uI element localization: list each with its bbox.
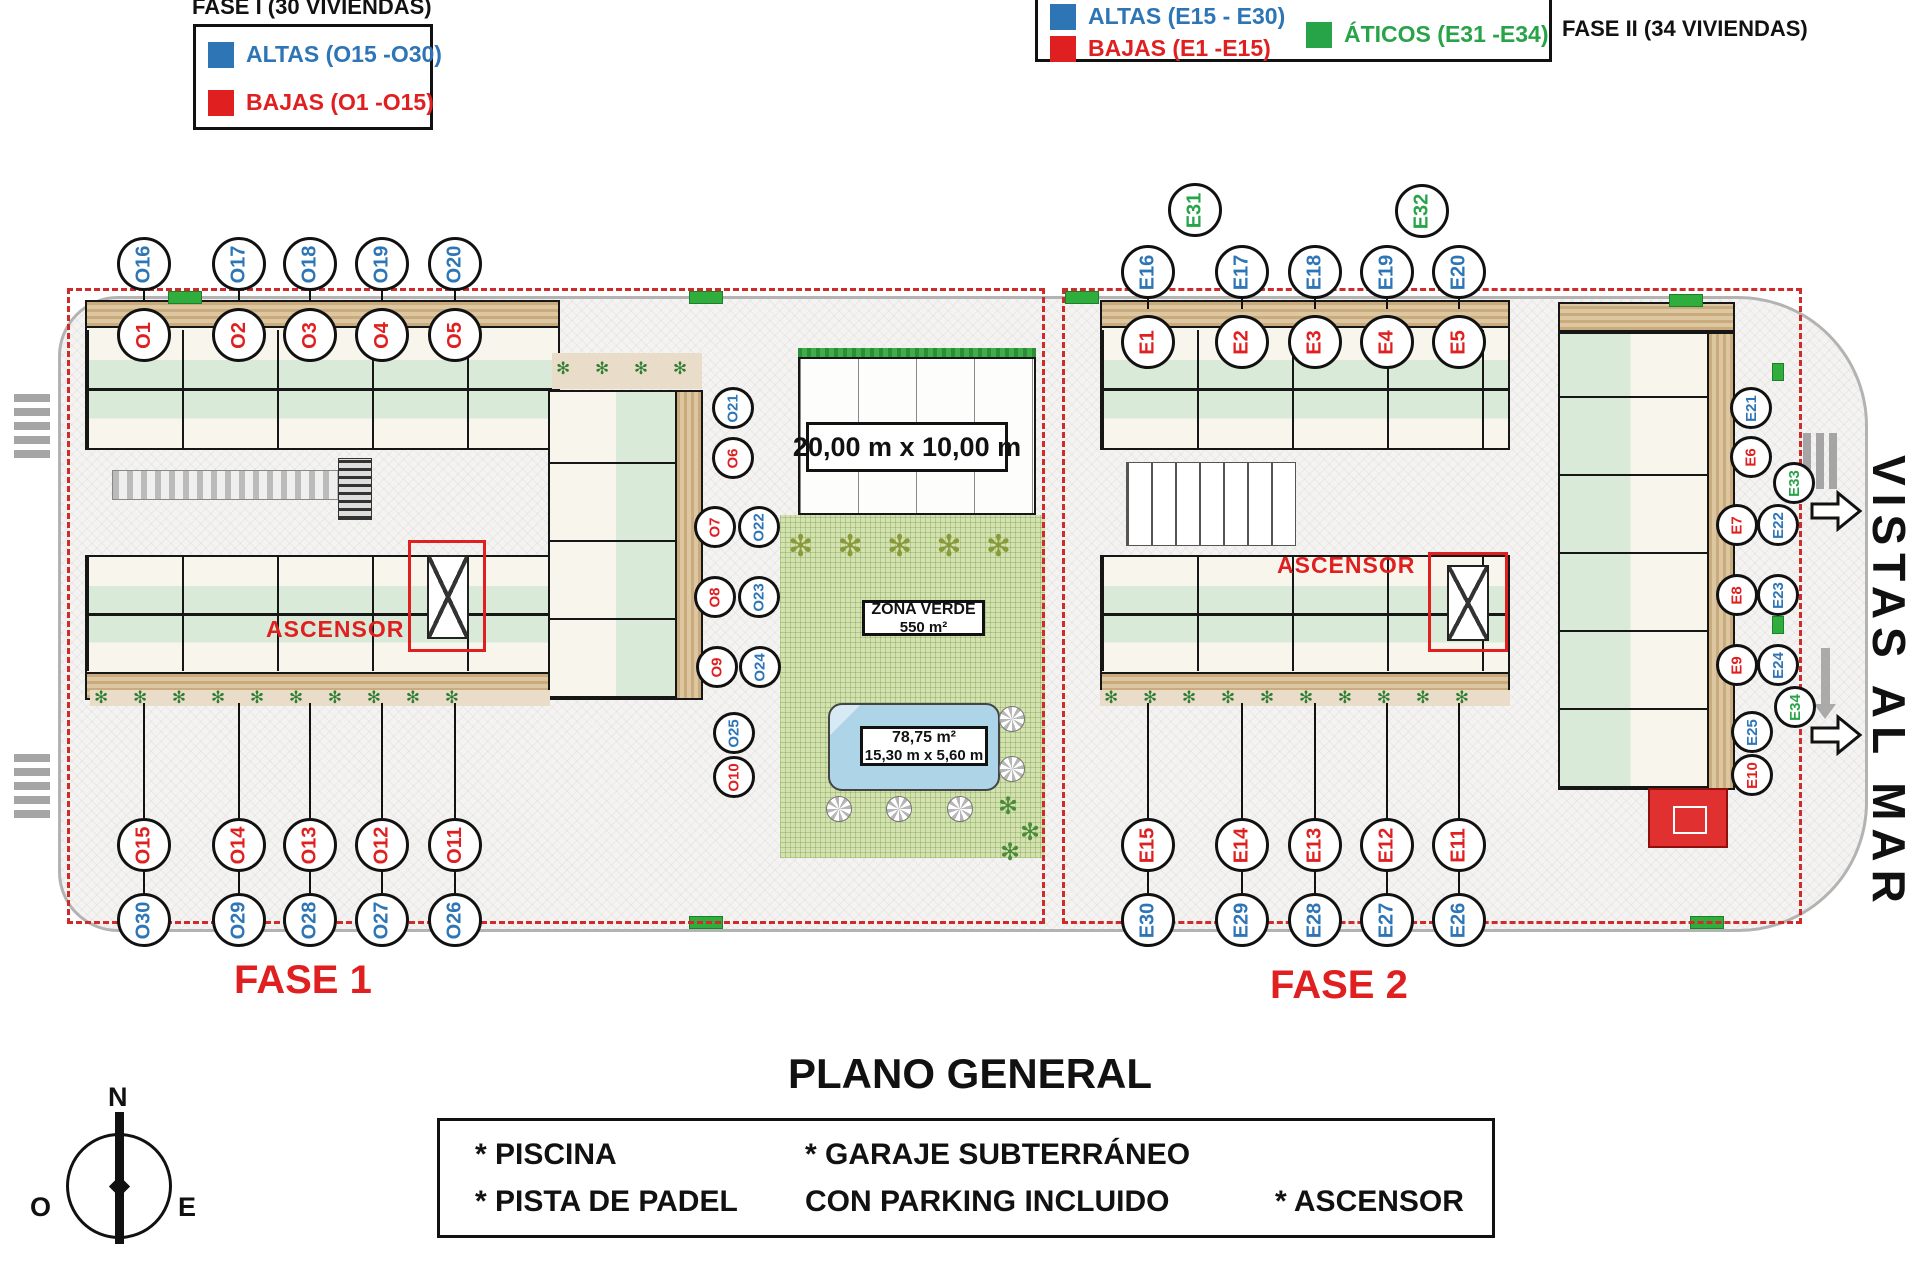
utility-room	[1648, 788, 1728, 848]
unit-circle-O3[interactable]: O3	[283, 308, 337, 362]
vent	[1065, 291, 1099, 304]
vistas-al-mar-label: VISTAS AL MAR	[1862, 455, 1916, 911]
tree-strip	[90, 690, 550, 706]
zona-verde-box: ZONA VERDE 550 m²	[862, 600, 985, 636]
compass-east-label: E	[178, 1192, 196, 1223]
unit-stem	[381, 291, 383, 301]
unit-stem	[1458, 871, 1460, 893]
zona-verde-label: ZONA VERDE	[871, 601, 975, 619]
unit-circle-label: O5	[444, 322, 467, 349]
unit-circle-E9[interactable]: E9	[1716, 644, 1758, 686]
unit-circle-label: O17	[228, 245, 251, 283]
unit-circle-O27[interactable]: O27	[355, 893, 409, 947]
unit-circle-label: E28	[1304, 902, 1327, 938]
unit-circle-label: E7	[1728, 516, 1745, 534]
parasol-icon	[886, 796, 912, 822]
unit-stem	[381, 703, 383, 818]
vent	[1772, 616, 1784, 634]
unit-circle-E10[interactable]: E10	[1731, 754, 1773, 796]
garage-ramp	[112, 470, 342, 500]
unit-circle-O26[interactable]: O26	[428, 893, 482, 947]
unit-circle-label: O22	[750, 513, 767, 541]
unit-circle-label: O29	[228, 901, 251, 939]
unit-circle-E19[interactable]: E19	[1360, 245, 1414, 299]
unit-column	[1560, 334, 1707, 788]
fase1-east-block	[548, 390, 703, 700]
garden-strip	[552, 353, 702, 389]
unit-circle-E24[interactable]: E24	[1757, 644, 1799, 686]
unit-circle-E18[interactable]: E18	[1288, 245, 1342, 299]
unit-circle-label: E24	[1769, 652, 1786, 679]
sea-arrow-icon	[1810, 490, 1864, 532]
unit-circle-label: E30	[1137, 902, 1160, 938]
unit-circle-E15[interactable]: E15	[1121, 818, 1175, 872]
unit-circle-label: O8	[706, 587, 723, 607]
unit-stem	[238, 703, 240, 818]
unit-circle-O24[interactable]: O24	[739, 646, 781, 688]
unit-circle-label: E20	[1448, 254, 1471, 290]
stairs-icon	[14, 748, 50, 818]
unit-circle-O9[interactable]: O9	[696, 646, 738, 688]
unit-circle-O10[interactable]: O10	[713, 756, 755, 798]
unit-circle-label: E9	[1728, 656, 1745, 674]
unit-circle-label: E13	[1304, 827, 1327, 863]
page-title: PLANO GENERAL	[788, 1050, 1152, 1098]
unit-circle-O20[interactable]: O20	[428, 237, 482, 291]
unit-stem	[1386, 703, 1388, 818]
legend-fase1-title: FASE I (30 VIVIENDAS)	[192, 0, 432, 20]
down-arrow-icon	[1821, 648, 1830, 706]
palm-tree: ✻	[1000, 838, 1020, 867]
elevator-icon	[1447, 565, 1489, 641]
unit-circle-label: E4	[1376, 330, 1399, 354]
unit-circle-E13[interactable]: E13	[1288, 818, 1342, 872]
unit-circle-label: O27	[371, 901, 394, 939]
unit-circle-label: O30	[133, 901, 156, 939]
unit-circle-O22[interactable]: O22	[738, 506, 780, 548]
fase1-ascensor-label: ASCENSOR	[266, 616, 404, 643]
unit-circle-E12[interactable]: E12	[1360, 818, 1414, 872]
unit-circle-O21[interactable]: O21	[712, 387, 754, 429]
unit-circle-label: O7	[706, 517, 723, 537]
amenities-box: * PISCINA * GARAJE SUBTERRÁNEO * PISTA D…	[437, 1118, 1495, 1238]
padel-dims-box: 20,00 m x 10,00 m	[806, 422, 1008, 472]
wood-deck	[1707, 334, 1733, 788]
fase2-ascensor-label: ASCENSOR	[1277, 552, 1415, 579]
unit-circle-label: O15	[133, 826, 156, 864]
compass-west-label: O	[30, 1192, 51, 1223]
unit-circle-label: E8	[1728, 586, 1745, 604]
fase2-east-block	[1558, 332, 1735, 790]
amenity-parking: CON PARKING INCLUIDO	[805, 1185, 1275, 1219]
unit-stem	[238, 291, 240, 301]
unit-circle-label: O13	[299, 826, 322, 864]
unit-circle-E2[interactable]: E2	[1215, 315, 1269, 369]
unit-circle-E32[interactable]: E32	[1395, 184, 1449, 238]
unit-circle-label: E10	[1743, 762, 1760, 789]
legend-fase2-bajas: BAJAS (E1 -E15)	[1050, 35, 1271, 62]
unit-circle-label: O4	[371, 322, 394, 349]
unit-circle-O2[interactable]: O2	[212, 308, 266, 362]
hedge-strip	[798, 348, 1036, 357]
unit-stem	[1458, 299, 1460, 309]
amenity-garaje: * GARAJE SUBTERRÁNEO	[805, 1138, 1275, 1172]
vent	[168, 291, 202, 304]
parasol-icon	[999, 706, 1025, 732]
unit-circle-label: E33	[1785, 470, 1802, 497]
unit-stem	[1241, 703, 1243, 818]
site-plan: FASE I (30 VIVIENDAS) ALTAS (O15 -O30) B…	[0, 0, 1920, 1280]
unit-circle-E20[interactable]: E20	[1432, 245, 1486, 299]
unit-stem	[1241, 871, 1243, 893]
unit-circle-label: E6	[1742, 448, 1759, 466]
unit-stem	[143, 703, 145, 818]
unit-circle-label: E2	[1231, 330, 1254, 354]
unit-stem	[1314, 703, 1316, 818]
bajas-swatch	[1050, 36, 1076, 62]
aticos-swatch	[1306, 22, 1332, 48]
pool-dims-box: 78,75 m² 15,30 m x 5,60 m	[860, 726, 988, 766]
unit-circle-label: E27	[1376, 902, 1399, 938]
unit-circle-O15[interactable]: O15	[117, 818, 171, 872]
unit-circle-label: O21	[724, 394, 741, 422]
unit-circle-label: E1	[1137, 330, 1160, 354]
unit-circle-O23[interactable]: O23	[738, 576, 780, 618]
vent	[1669, 294, 1703, 307]
unit-circle-E30[interactable]: E30	[1121, 893, 1175, 947]
unit-circle-label: E23	[1769, 582, 1786, 609]
unit-circle-E17[interactable]: E17	[1215, 245, 1269, 299]
unit-circle-label: O2	[228, 322, 251, 349]
sea-arrow-icon	[1810, 714, 1864, 756]
wood-deck	[1558, 302, 1735, 332]
unit-circle-label: O11	[443, 827, 466, 864]
unit-stem	[1386, 871, 1388, 893]
legend-fase2-title: FASE II (34 VIVIENDAS)	[1562, 16, 1808, 42]
unit-circle-label: O6	[724, 448, 741, 468]
legend-fase2-aticos: ÁTICOS (E31 -E34)	[1306, 21, 1549, 48]
unit-stem	[381, 871, 383, 893]
unit-circle-E7[interactable]: E7	[1716, 504, 1758, 546]
unit-circle-label: O16	[133, 245, 156, 283]
amenity-padel: * PISTA DE PADEL	[475, 1185, 805, 1219]
unit-circle-O25[interactable]: O25	[713, 712, 755, 754]
unit-stem	[143, 291, 145, 301]
palm-tree: ✻	[1020, 818, 1040, 847]
altas-swatch	[208, 42, 234, 68]
unit-circle-label: E11	[1447, 828, 1470, 862]
tree-strip	[1100, 690, 1510, 706]
unit-stem	[309, 871, 311, 893]
unit-circle-O5[interactable]: O5	[428, 308, 482, 362]
unit-circle-label: E18	[1304, 254, 1327, 290]
unit-circle-E27[interactable]: E27	[1360, 893, 1414, 947]
vent	[689, 291, 723, 304]
unit-circle-E6[interactable]: E6	[1730, 436, 1772, 478]
unit-circle-label: O14	[228, 826, 251, 864]
unit-circle-O4[interactable]: O4	[355, 308, 409, 362]
legend-fase2-box: ALTAS (E15 - E30) BAJAS (E1 -E15) ÁTICOS…	[1035, 0, 1552, 62]
unit-stem	[1147, 299, 1149, 309]
amenity-piscina: * PISCINA	[475, 1138, 805, 1172]
unit-circle-O11[interactable]: O11	[428, 818, 482, 872]
unit-circle-E28[interactable]: E28	[1288, 893, 1342, 947]
unit-circle-E31[interactable]: E31	[1168, 183, 1222, 237]
unit-circle-label: E17	[1231, 254, 1254, 290]
stairs-block	[338, 458, 372, 520]
unit-circle-label: O23	[750, 583, 767, 611]
unit-circle-label: E31	[1184, 192, 1207, 228]
unit-circle-E8[interactable]: E8	[1716, 574, 1758, 616]
unit-circle-E26[interactable]: E26	[1432, 893, 1486, 947]
unit-circle-O16[interactable]: O16	[117, 237, 171, 291]
unit-circle-label: E16	[1137, 254, 1160, 290]
unit-column	[550, 392, 677, 698]
unit-stem	[454, 291, 456, 301]
amenity-ascensor: * ASCENSOR	[1275, 1185, 1515, 1219]
unit-stem	[238, 871, 240, 893]
unit-stem	[1241, 299, 1243, 309]
unit-row	[1102, 388, 1508, 448]
unit-circle-O8[interactable]: O8	[694, 576, 736, 618]
palm-tree-row	[788, 530, 1038, 566]
unit-circle-E33[interactable]: E33	[1773, 462, 1815, 504]
unit-circle-label: E14	[1231, 827, 1254, 863]
unit-circle-label: O24	[751, 653, 768, 681]
unit-circle-label: O20	[444, 245, 467, 283]
unit-stem	[454, 871, 456, 893]
unit-circle-label: O18	[299, 245, 322, 283]
fase2-elevator-box	[1428, 552, 1508, 652]
unit-stem	[143, 871, 145, 893]
unit-circle-label: O10	[725, 763, 742, 791]
wood-deck	[675, 392, 701, 698]
unit-circle-O17[interactable]: O17	[212, 237, 266, 291]
unit-circle-label: E5	[1448, 330, 1471, 354]
unit-circle-E25[interactable]: E25	[1731, 711, 1773, 753]
unit-circle-O1[interactable]: O1	[117, 308, 171, 362]
compass-north-label: N	[108, 1082, 128, 1113]
unit-stem	[1147, 871, 1149, 893]
unit-circle-E4[interactable]: E4	[1360, 315, 1414, 369]
vent	[689, 916, 723, 929]
altas-swatch	[1050, 4, 1076, 30]
palm-tree: ✻	[998, 792, 1018, 821]
unit-circle-label: E22	[1769, 512, 1786, 539]
parasol-icon	[826, 796, 852, 822]
unit-circle-label: O1	[133, 322, 156, 349]
unit-circle-O18[interactable]: O18	[283, 237, 337, 291]
unit-stem	[1458, 703, 1460, 818]
stairs-icon	[14, 388, 50, 458]
unit-row	[87, 388, 558, 448]
unit-circle-label: E19	[1376, 254, 1399, 290]
unit-circle-label: O26	[444, 901, 467, 939]
unit-circle-E16[interactable]: E16	[1121, 245, 1175, 299]
unit-stem	[309, 291, 311, 301]
vent	[1690, 916, 1724, 929]
unit-circle-label: E21	[1742, 395, 1759, 422]
unit-circle-E5[interactable]: E5	[1432, 315, 1486, 369]
unit-circle-label: O28	[299, 901, 322, 939]
unit-stem	[1314, 871, 1316, 893]
unit-circle-label: E29	[1231, 902, 1254, 938]
unit-circle-label: O9	[708, 657, 725, 677]
unit-circle-label: O12	[371, 826, 394, 864]
unit-circle-E34[interactable]: E34	[1774, 686, 1816, 728]
unit-circle-E21[interactable]: E21	[1730, 387, 1772, 429]
fase1-elevator-box	[408, 540, 486, 652]
unit-stem	[1314, 299, 1316, 309]
padel-dims-label: 20,00 m x 10,00 m	[793, 432, 1021, 463]
parasol-icon	[999, 756, 1025, 782]
zona-verde-size: 550 m²	[900, 619, 948, 636]
legend-fase1-box: ALTAS (O15 -O30) BAJAS (O1 -O15)	[193, 24, 433, 130]
legend-fase1-bajas: BAJAS (O1 -O15)	[208, 89, 434, 116]
elevator-icon	[427, 555, 469, 639]
unit-circle-E1[interactable]: E1	[1121, 315, 1175, 369]
unit-circle-E3[interactable]: E3	[1288, 315, 1342, 369]
unit-circle-label: E25	[1743, 719, 1760, 746]
unit-row	[87, 557, 558, 613]
unit-circle-O19[interactable]: O19	[355, 237, 409, 291]
unit-circle-O6[interactable]: O6	[712, 437, 754, 479]
unit-circle-label: O25	[725, 719, 742, 747]
unit-circle-O30[interactable]: O30	[117, 893, 171, 947]
parking-stalls	[1126, 462, 1296, 546]
unit-stem	[454, 703, 456, 818]
unit-circle-O14[interactable]: O14	[212, 818, 266, 872]
unit-circle-label: E26	[1448, 902, 1471, 938]
unit-circle-E22[interactable]: E22	[1757, 504, 1799, 546]
unit-circle-O13[interactable]: O13	[283, 818, 337, 872]
unit-circle-label: E12	[1376, 827, 1399, 863]
fase1-label: FASE 1	[234, 958, 372, 1003]
unit-stem	[1147, 703, 1149, 818]
pool-area-label: 78,75 m²	[892, 729, 956, 747]
unit-stem	[309, 703, 311, 818]
unit-circle-label: E32	[1411, 193, 1434, 229]
unit-circle-O28[interactable]: O28	[283, 893, 337, 947]
unit-circle-label: E3	[1304, 330, 1327, 354]
unit-circle-E23[interactable]: E23	[1757, 574, 1799, 616]
unit-circle-O12[interactable]: O12	[355, 818, 409, 872]
unit-circle-label: E34	[1786, 694, 1803, 721]
unit-circle-E11[interactable]: E11	[1432, 818, 1486, 872]
legend-fase1-altas: ALTAS (O15 -O30)	[208, 41, 442, 68]
pool-dims-label: 15,30 m x 5,60 m	[865, 747, 983, 764]
unit-circle-O29[interactable]: O29	[212, 893, 266, 947]
vent	[1772, 363, 1784, 381]
unit-circle-label: E15	[1137, 827, 1160, 863]
bajas-swatch	[208, 90, 234, 116]
unit-circle-O7[interactable]: O7	[694, 506, 736, 548]
unit-circle-label: O3	[299, 322, 322, 349]
parasol-icon	[947, 796, 973, 822]
unit-stem	[1386, 299, 1388, 309]
unit-circle-E14[interactable]: E14	[1215, 818, 1269, 872]
fase2-label: FASE 2	[1270, 963, 1408, 1008]
unit-circle-label: O19	[371, 245, 394, 283]
legend-fase2-altas: ALTAS (E15 - E30)	[1050, 3, 1285, 30]
unit-circle-E29[interactable]: E29	[1215, 893, 1269, 947]
